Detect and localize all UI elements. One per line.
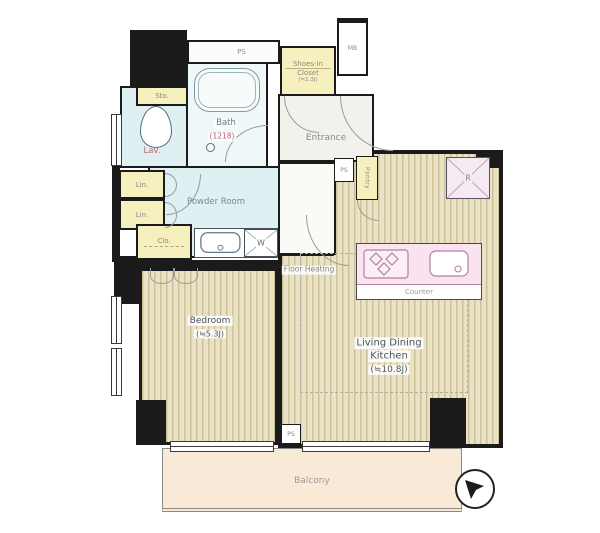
mb-label: MB bbox=[348, 45, 357, 52]
shower-valve-icon bbox=[206, 143, 215, 152]
kitchen-counter: Counter bbox=[356, 243, 482, 300]
pillar-top-left bbox=[130, 30, 187, 87]
pillar-bottom-right bbox=[430, 398, 466, 445]
entrance-label: Entrance bbox=[306, 133, 346, 143]
shoes-closet-size: (≒1.3J) bbox=[298, 77, 317, 83]
lin-lower-label: Lin. bbox=[136, 211, 149, 219]
sto-box: Sto. bbox=[136, 86, 188, 106]
linen-closet-upper: Lin. bbox=[119, 170, 165, 199]
refrigerator-space: R bbox=[446, 157, 490, 199]
ps-duct-bottom: PS bbox=[281, 424, 301, 444]
fridge-label: R bbox=[464, 174, 472, 183]
bifold-door-icon bbox=[150, 268, 174, 284]
floor-plan: PS MB Shoes-in Closet (≒1.3J) Entrance B… bbox=[0, 0, 600, 533]
pantry-label: Pantry bbox=[364, 167, 371, 189]
ps-top-label: PS bbox=[237, 48, 246, 56]
powder-room-label: Powder Room bbox=[185, 198, 247, 208]
bathtub-icon bbox=[194, 68, 260, 112]
bedroom-label: Bedroom bbox=[188, 316, 233, 326]
meter-box: MB bbox=[337, 18, 368, 76]
clo-label: Clo. bbox=[157, 237, 170, 245]
balcony-sliding-door bbox=[170, 441, 274, 452]
shoes-closet-label-1: Shoes-in bbox=[293, 60, 323, 68]
lin-upper-label: Lin. bbox=[136, 181, 149, 189]
sto-label: Sto. bbox=[155, 92, 169, 100]
pillar-bottom-left bbox=[136, 400, 166, 445]
pantry-box: Pantry bbox=[356, 156, 378, 200]
balcony-label: Balcony bbox=[292, 476, 332, 486]
bedroom-window bbox=[111, 296, 122, 344]
left-wall bbox=[112, 162, 120, 262]
ldk-label-1: Living Dining bbox=[354, 337, 423, 349]
stove-icon bbox=[363, 249, 409, 279]
ps-duct-kitchen: PS bbox=[334, 158, 354, 182]
closet-box: Clo. bbox=[136, 224, 192, 260]
counter-label: Counter bbox=[405, 288, 433, 296]
balcony-sliding-door bbox=[302, 441, 430, 452]
shoes-closet-label-2: Closet bbox=[285, 68, 332, 77]
floor-heating-label: Floor Heating bbox=[282, 266, 336, 275]
washer-label: W bbox=[256, 239, 266, 248]
ps-kitchen-label: PS bbox=[340, 167, 347, 174]
bath-label: Bath bbox=[214, 119, 238, 129]
ps-duct-top: PS bbox=[187, 40, 280, 64]
kitchen-sink-icon bbox=[429, 250, 471, 278]
compass-icon bbox=[455, 469, 495, 509]
shoes-in-closet: Shoes-in Closet (≒1.3J) bbox=[280, 46, 336, 96]
bifold-door-icon bbox=[174, 268, 198, 284]
bedroom-size: (≒5.3J) bbox=[194, 329, 226, 338]
ps-bottom-label: PS bbox=[287, 431, 294, 438]
bath-size: (1218) bbox=[208, 133, 237, 142]
bedroom-window bbox=[111, 348, 122, 396]
ldk-label-2: Kitchen bbox=[368, 350, 410, 362]
ldk-size: (≒10.8J) bbox=[368, 365, 409, 375]
lavatory-label: Lav. bbox=[141, 147, 162, 157]
washing-machine: W bbox=[244, 229, 278, 257]
lavatory-window bbox=[111, 114, 122, 166]
